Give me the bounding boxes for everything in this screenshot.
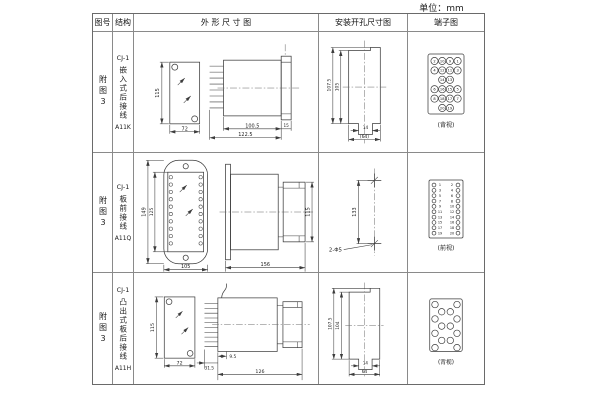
- svg-text:14: 14: [363, 360, 369, 365]
- view-label: (背视): [438, 358, 454, 366]
- svg-text:72: 72: [182, 126, 188, 132]
- view-label: (前视): [438, 244, 455, 252]
- terminal-drawing-a11h: (背视): [408, 273, 484, 384]
- svg-text:7: 7: [456, 96, 458, 100]
- model-code: A11Q: [115, 235, 131, 242]
- svg-text:15: 15: [448, 87, 453, 91]
- svg-text:126: 126: [255, 369, 264, 375]
- svg-text:13: 13: [448, 78, 453, 82]
- svg-text:105: 105: [181, 264, 190, 270]
- svg-text:104: 104: [335, 321, 341, 329]
- model-label: CJ-1: [117, 183, 130, 191]
- spec-table: 图号 结构 外 形 尺 寸 图 安装开孔尺寸图 端子图 附图3 CJ-1 嵌入式…: [92, 13, 485, 385]
- install-drawing-a11h: 107.5 104 14 64: [319, 273, 408, 384]
- svg-text:10: 10: [450, 205, 454, 209]
- svg-text:115: 115: [150, 323, 156, 332]
- model-label: CJ-1: [117, 54, 130, 62]
- svg-text:3: 3: [439, 189, 441, 193]
- svg-text:72: 72: [177, 360, 183, 366]
- svg-text:10: 10: [440, 59, 445, 63]
- fig-no-label: 附图3: [99, 312, 107, 346]
- svg-text:15: 15: [284, 123, 290, 128]
- svg-text:100.5: 100.5: [245, 123, 259, 129]
- fig-no-cell-a11h: 附图3: [93, 273, 113, 384]
- svg-text:125: 125: [149, 208, 155, 217]
- terminal-grid: 1357911131517192468101214161820: [432, 183, 460, 235]
- svg-text:9.5: 9.5: [229, 354, 236, 360]
- svg-text:3: 3: [456, 68, 458, 72]
- svg-text:20: 20: [440, 106, 445, 110]
- svg-text:2: 2: [433, 59, 435, 63]
- structure-name: 嵌入式后接线: [119, 66, 127, 120]
- install-drawing-a11k: 107.5 105 14 (64): [319, 32, 408, 153]
- svg-text:105: 105: [334, 82, 340, 91]
- structure-name: 凸出式板后接线: [119, 298, 127, 361]
- svg-text:9: 9: [449, 59, 452, 63]
- svg-text:64: 64: [362, 369, 368, 375]
- structure-cell-a11q: CJ-1 板前接线 A11Q: [113, 153, 134, 273]
- header-fig-no: 图号: [93, 14, 113, 32]
- svg-text:115: 115: [306, 207, 312, 216]
- svg-text:20: 20: [450, 231, 454, 235]
- svg-text:(64): (64): [360, 133, 369, 139]
- svg-text:2: 2: [451, 183, 453, 187]
- svg-text:5: 5: [439, 194, 441, 198]
- svg-text:5: 5: [456, 87, 458, 91]
- header-outline-dims: 外 形 尺 寸 图: [134, 14, 319, 32]
- svg-text:1: 1: [456, 59, 458, 63]
- svg-text:18: 18: [450, 226, 454, 230]
- header-terminal-diagram: 端子图: [408, 14, 484, 32]
- svg-text:107.5: 107.5: [327, 317, 333, 330]
- svg-text:19: 19: [448, 106, 453, 110]
- svg-text:149: 149: [141, 207, 147, 216]
- structure-cell-a11h: CJ-1 凸出式板后接线 A11H: [113, 273, 134, 384]
- svg-text:19: 19: [438, 231, 442, 235]
- model-label: CJ-1: [117, 286, 130, 294]
- header-install-dims: 安装开孔尺寸图: [319, 14, 408, 32]
- fig-no-label: 附图3: [99, 196, 107, 230]
- outline-drawing-a11q: 149 125 105 156 115: [134, 153, 319, 273]
- svg-text:122.5: 122.5: [238, 132, 252, 138]
- svg-text:2-Φ5: 2-Φ5: [329, 248, 342, 254]
- svg-text:6: 6: [451, 194, 453, 198]
- svg-text:17: 17: [438, 226, 442, 230]
- terminal-drawing-a11k: 2109141211314136161558181772019 (背视): [408, 32, 484, 153]
- svg-text:15: 15: [438, 221, 442, 225]
- svg-text:14: 14: [450, 215, 454, 219]
- structure-cell-a11k: CJ-1 嵌入式后接线 A11K: [113, 32, 134, 153]
- terminal-grid: [432, 301, 461, 351]
- svg-text:8: 8: [451, 199, 453, 203]
- terminal-drawing-a11q: 1357911131517192468101214161820 (前视): [408, 153, 484, 273]
- svg-text:17: 17: [448, 96, 453, 100]
- svg-text:1: 1: [439, 183, 441, 187]
- svg-text:13: 13: [438, 215, 442, 219]
- svg-text:8: 8: [433, 96, 436, 100]
- svg-text:107.5: 107.5: [326, 78, 332, 91]
- fig-no-label: 附图3: [99, 75, 107, 109]
- svg-text:4: 4: [433, 68, 436, 72]
- structure-name: 板前接线: [119, 195, 127, 231]
- svg-text:16: 16: [440, 87, 445, 91]
- svg-text:4: 4: [451, 189, 453, 193]
- svg-text:7: 7: [439, 199, 441, 203]
- install-drawing-a11q: 133 2-Φ5: [319, 153, 408, 273]
- outline-drawing-a11k: 115 72 100.5 15 122.5: [134, 32, 319, 153]
- svg-text:14: 14: [440, 78, 445, 82]
- outline-drawing-a11h: 115 72 31.5 9.5 126: [134, 273, 319, 384]
- svg-text:133: 133: [352, 207, 358, 216]
- svg-text:115: 115: [155, 88, 161, 97]
- fig-no-cell-a11q: 附图3: [93, 153, 113, 273]
- svg-text:156: 156: [261, 262, 270, 268]
- terminal-grid: 2109141211314136161558181772019: [431, 57, 461, 111]
- svg-text:11: 11: [448, 68, 453, 72]
- svg-text:31.5: 31.5: [204, 366, 214, 372]
- header-structure: 结构: [113, 14, 134, 32]
- svg-text:14: 14: [363, 125, 369, 130]
- svg-text:11: 11: [438, 210, 442, 214]
- svg-text:16: 16: [450, 221, 454, 225]
- view-label: (背视): [438, 121, 455, 129]
- svg-text:9: 9: [439, 205, 441, 209]
- svg-text:12: 12: [450, 210, 454, 214]
- model-code: A11H: [115, 365, 131, 372]
- fig-no-cell-a11k: 附图3: [93, 32, 113, 153]
- svg-text:18: 18: [440, 96, 445, 100]
- svg-text:12: 12: [440, 68, 445, 72]
- svg-text:6: 6: [433, 87, 436, 91]
- model-code: A11K: [115, 124, 131, 131]
